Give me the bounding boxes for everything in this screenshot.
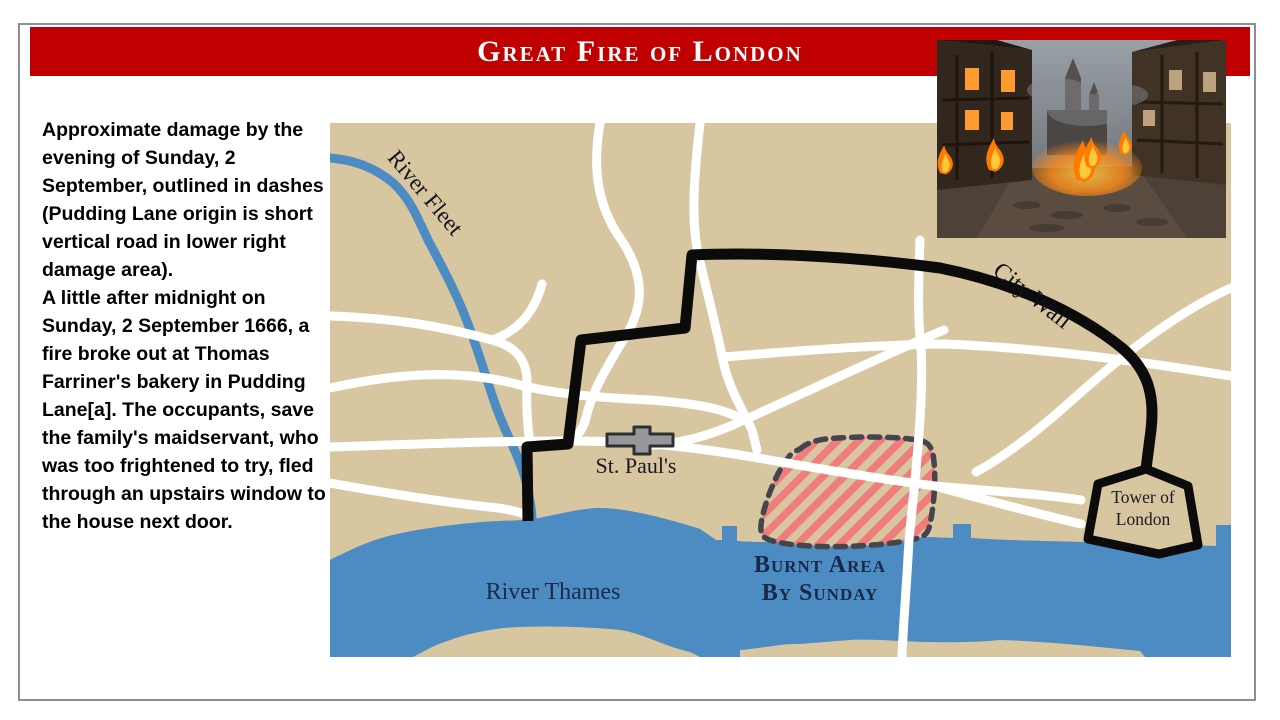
label-st-pauls: St. Paul's bbox=[596, 453, 677, 478]
label-burnt-area-line1: Burnt Area bbox=[754, 552, 886, 578]
label-burnt-area-line2: By Sunday bbox=[762, 580, 878, 606]
label-tower-line2: London bbox=[1116, 509, 1171, 529]
photo-right-buildings bbox=[1132, 40, 1226, 185]
label-tower-line1: Tower of bbox=[1111, 487, 1175, 507]
label-river-thames: River Thames bbox=[486, 579, 621, 605]
paragraph-damage-note: Approximate damage by the evening of Sun… bbox=[42, 116, 326, 284]
page-title: Great Fire of London bbox=[477, 37, 803, 67]
body-text-block: Approximate damage by the evening of Sun… bbox=[42, 116, 326, 536]
paragraph-fire-start: A little after midnight on Sunday, 2 Sep… bbox=[42, 284, 326, 536]
fire-scene-photo bbox=[937, 40, 1226, 238]
